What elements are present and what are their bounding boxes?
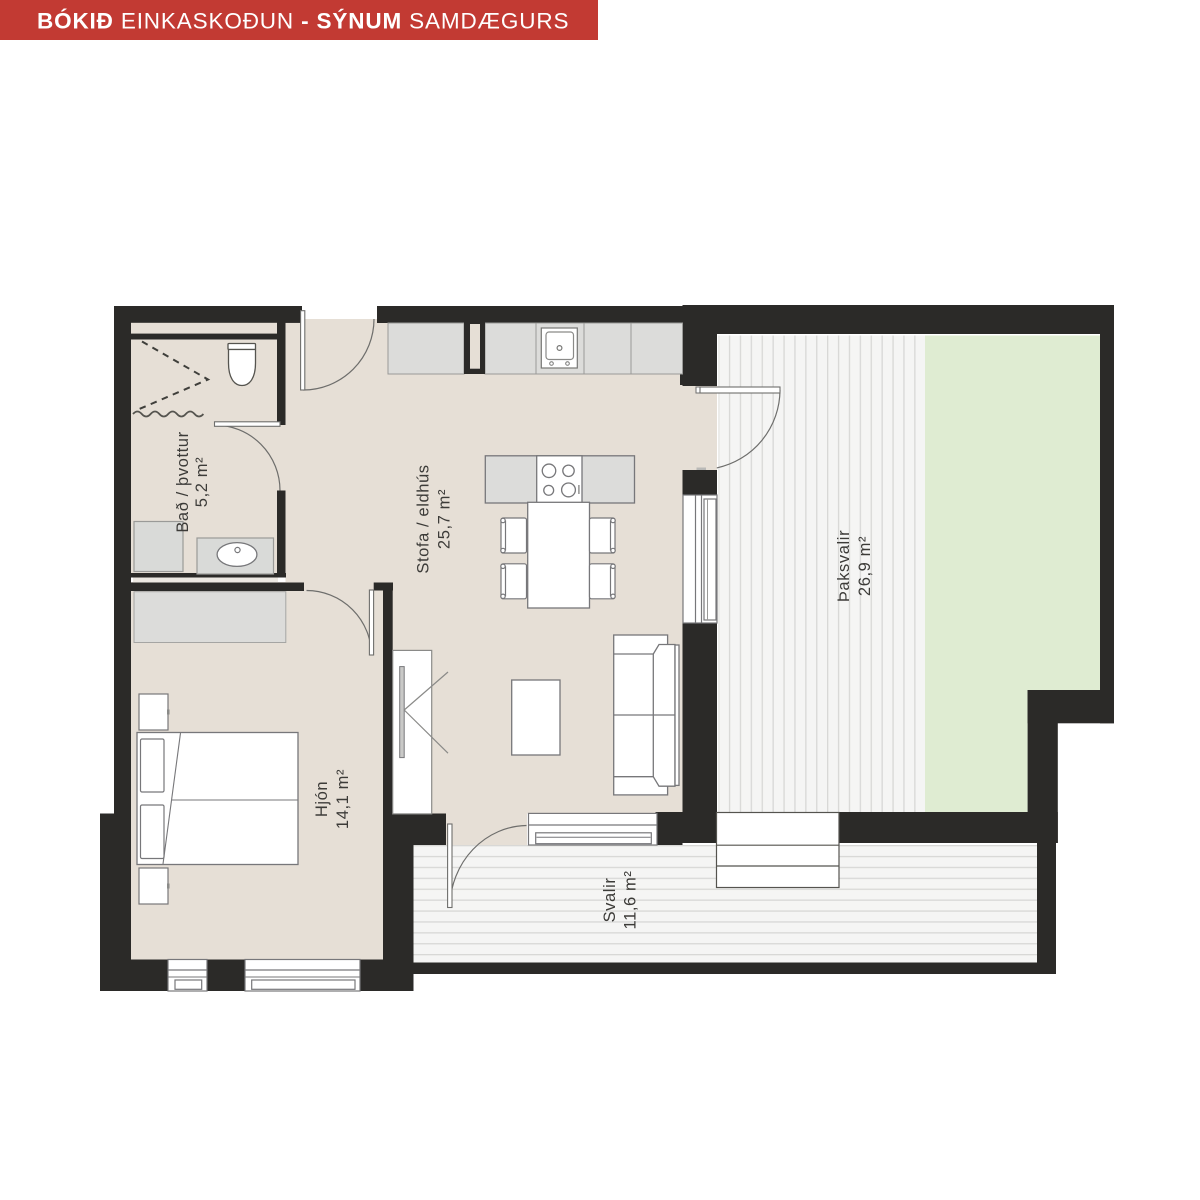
- svg-text:5,2 m²: 5,2 m²: [193, 457, 211, 507]
- svg-text:14,1 m²: 14,1 m²: [334, 769, 352, 829]
- svg-text:Hjón: Hjón: [313, 781, 331, 817]
- svg-text:11,6 m²: 11,6 m²: [622, 871, 640, 930]
- svg-text:26,9 m²: 26,9 m²: [856, 536, 874, 596]
- svg-text:25,7 m²: 25,7 m²: [436, 489, 454, 549]
- svg-text:Þaksvalir: Þaksvalir: [835, 530, 853, 602]
- svg-text:Stofa / eldhús: Stofa / eldhús: [415, 464, 433, 573]
- svg-text:Bað / þvottur: Bað / þvottur: [174, 431, 192, 532]
- svg-text:Svalir: Svalir: [601, 878, 619, 923]
- svg-text:BÓKIÐ EINKASKOÐUN - SÝNUM SAMD: BÓKIÐ EINKASKOÐUN - SÝNUM SAMDÆGURS: [37, 9, 569, 34]
